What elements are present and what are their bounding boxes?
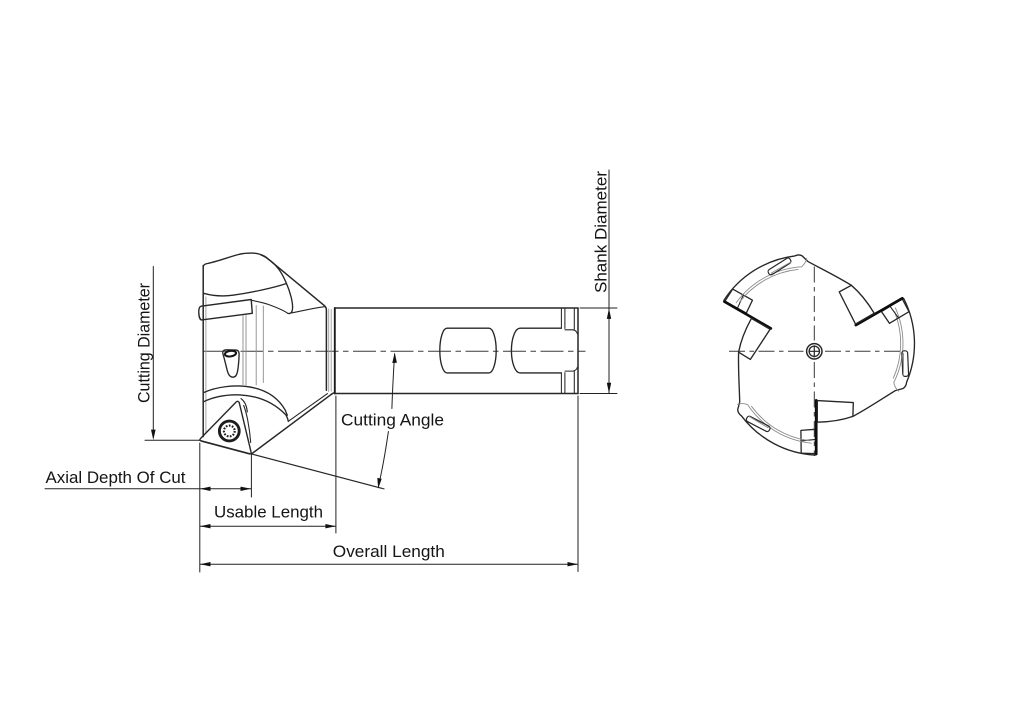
svg-text:Overall Length: Overall Length (333, 542, 445, 561)
svg-text:Shank Diameter: Shank Diameter (592, 171, 611, 293)
svg-text:Axial Depth Of Cut: Axial Depth Of Cut (46, 468, 186, 487)
svg-text:Cutting Angle: Cutting Angle (341, 410, 444, 429)
svg-text:Usable Length: Usable Length (214, 502, 323, 521)
svg-text:Cutting Diameter: Cutting Diameter (135, 283, 154, 403)
